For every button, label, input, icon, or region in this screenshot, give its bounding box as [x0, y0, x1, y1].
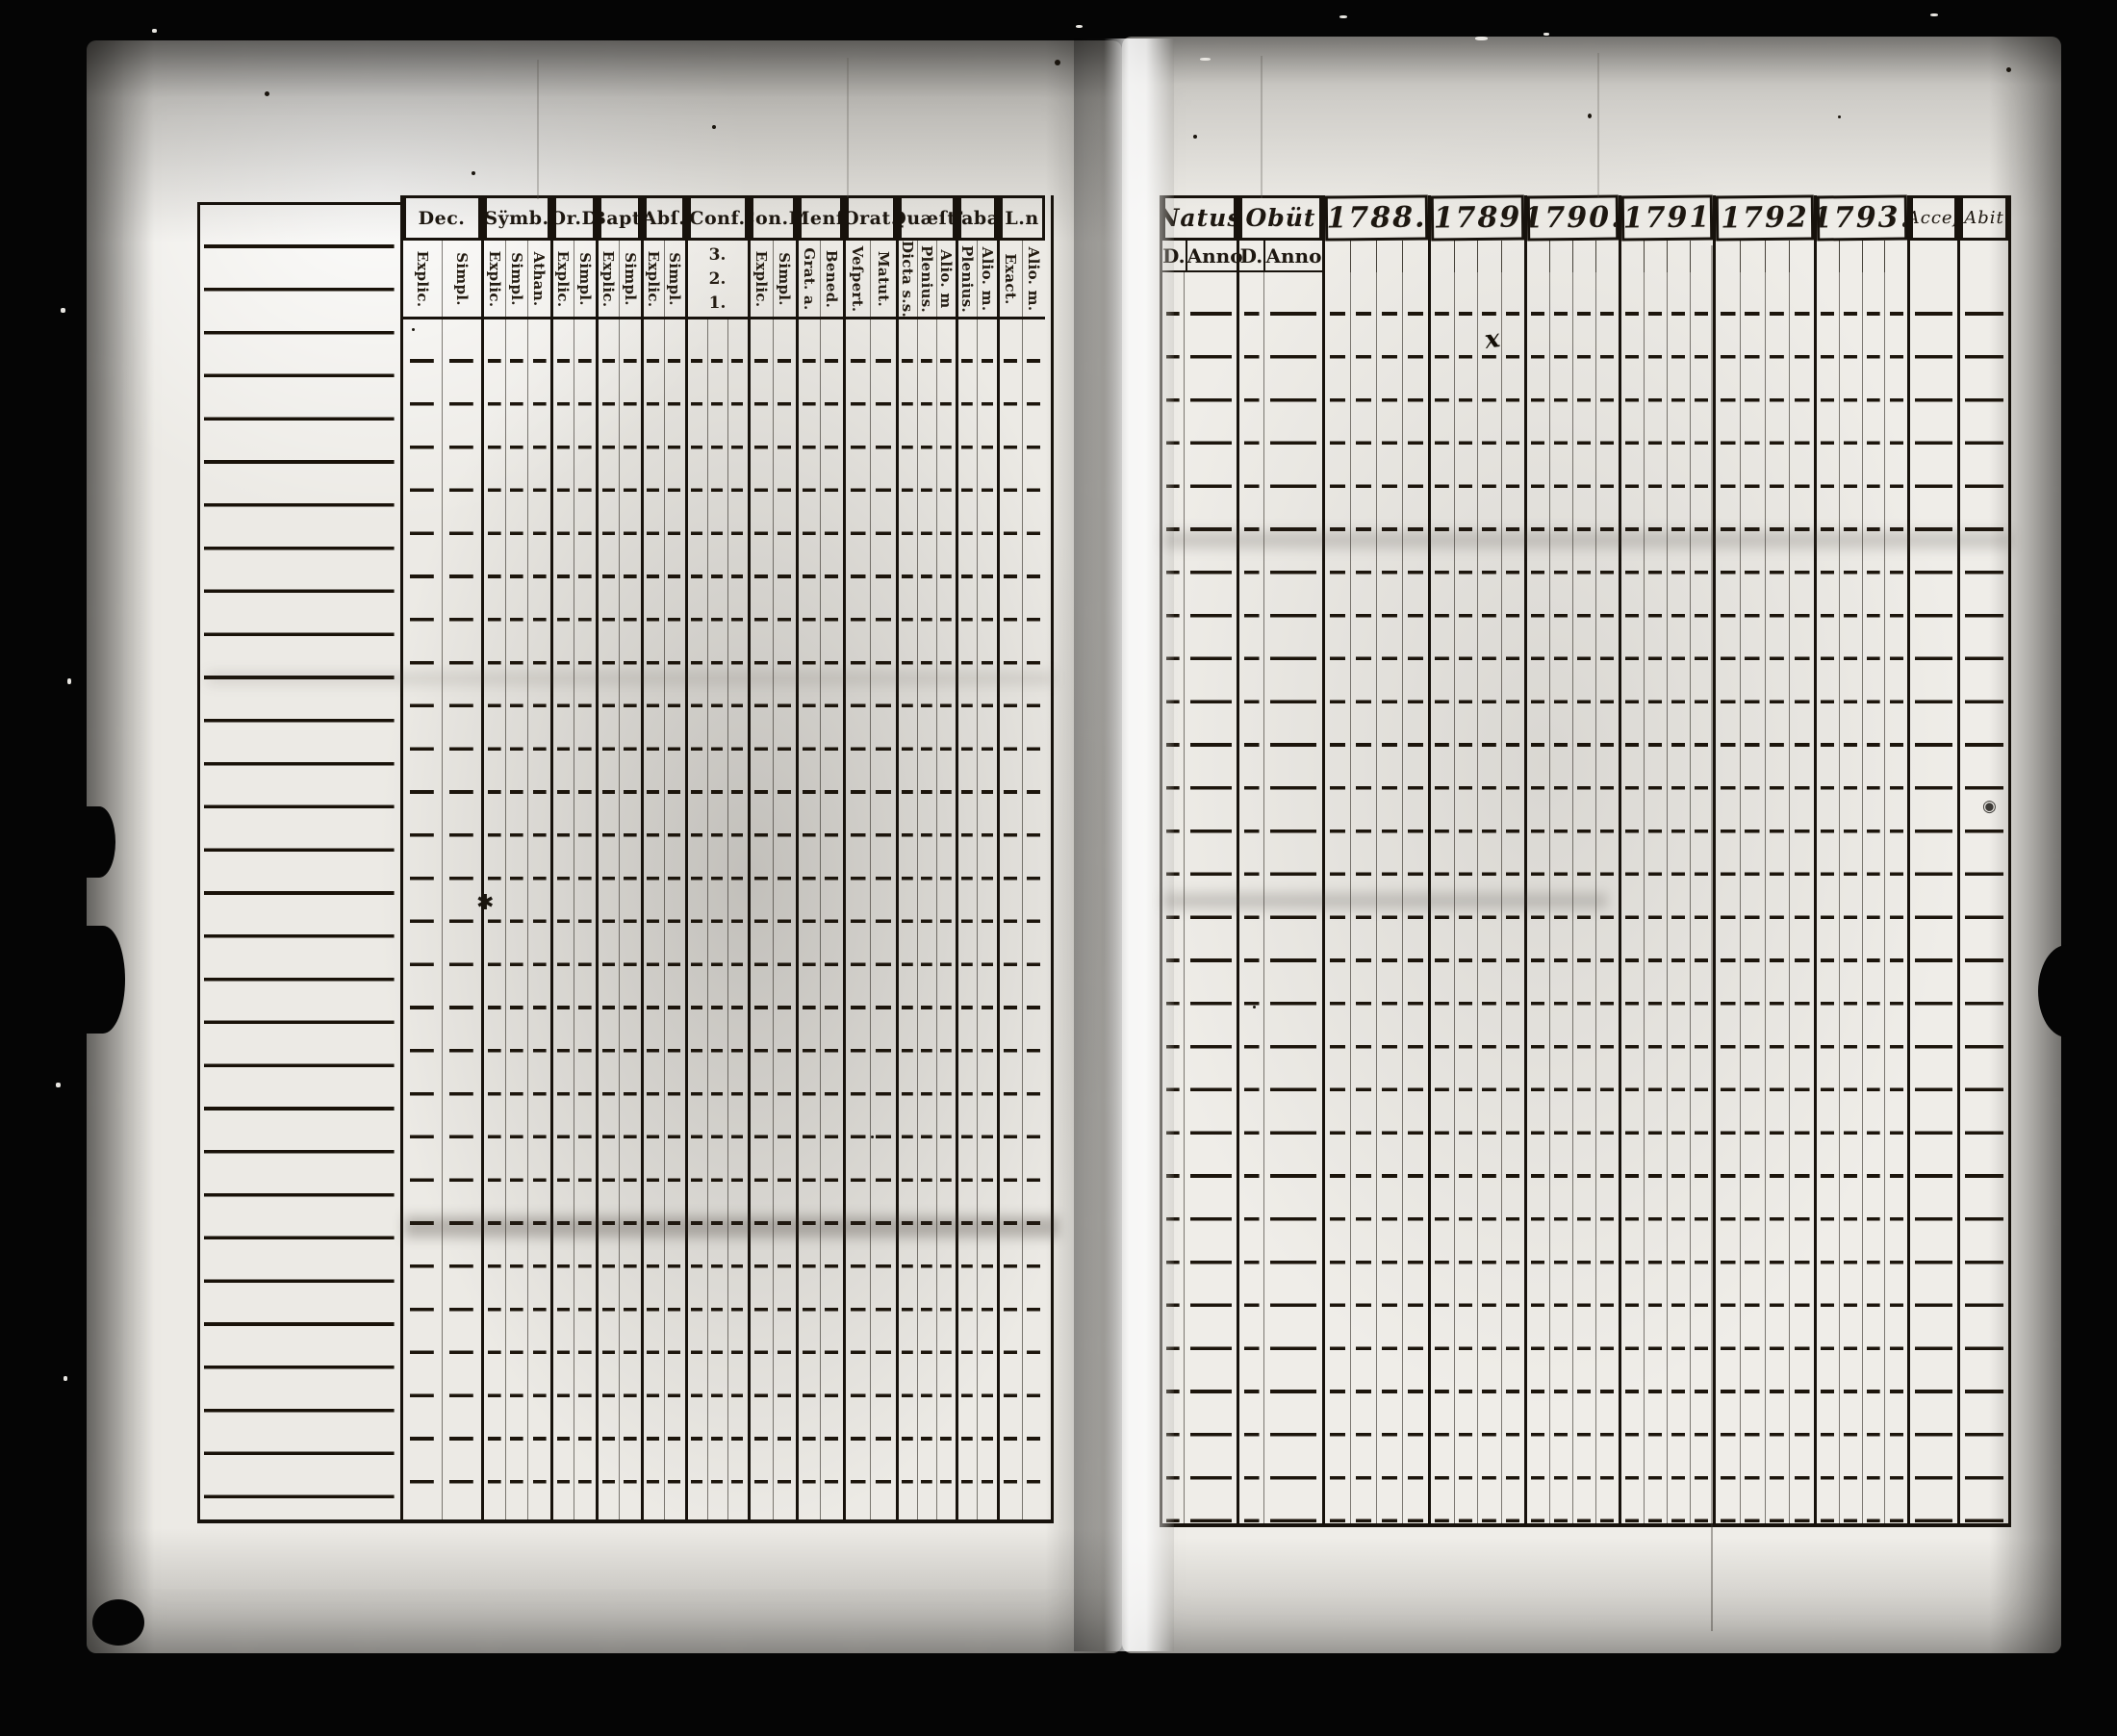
body-subcolumn — [527, 319, 549, 1519]
subcolumn-header: Exact. — [1000, 241, 1022, 317]
column-year-1788: 1788. — [1322, 195, 1428, 1523]
column-ln: L.n Exact. Alio. m. — [997, 195, 1045, 1519]
body-subcolumn — [1667, 272, 1690, 1523]
scratch-speck — [64, 1376, 67, 1381]
column-year-1789: 1789 — [1428, 195, 1524, 1523]
body-subcolumn — [846, 319, 871, 1519]
column-abit: Abit — [1957, 195, 2008, 1523]
body-subcolumn — [1184, 272, 1237, 1523]
column-header: Con.D — [751, 195, 796, 241]
subcolumn-header: Dicta s.s. — [899, 241, 917, 317]
right-register-table: Natus D. Anno Obüt D. Anno 1788. — [1160, 195, 2011, 1527]
body-subcolumn — [1000, 319, 1022, 1519]
body-subcolumn — [870, 319, 896, 1519]
body-subcolumn — [1527, 272, 1549, 1523]
year-header: 1789 — [1431, 194, 1524, 241]
body-subcolumn — [403, 319, 442, 1519]
year-header: 1791 — [1621, 195, 1713, 242]
subcolumn-header: Plenius. — [917, 241, 936, 317]
body-subcolumn — [619, 319, 641, 1519]
body-subcolumn — [1501, 272, 1525, 1523]
body-subcolumn — [727, 319, 748, 1519]
subcolumn-header: Bened. — [820, 241, 843, 317]
column-header: Tabæ — [958, 195, 997, 241]
column-conf: Conf. 3. 2. 1. — [685, 195, 748, 1519]
column-header: Sÿmb. — [484, 195, 550, 241]
body-subcolumn — [1817, 272, 1839, 1523]
column-abs: Abſ. Explic. Simpl. — [641, 195, 685, 1519]
body-subcolumn — [1572, 272, 1595, 1523]
column-mens: Menſ. Grat. a. Bened. — [796, 195, 843, 1519]
column-header: Acceſ — [1910, 195, 1957, 241]
class-levels: 3. 2. 1. — [688, 241, 748, 317]
subcolumn-header: Matut. — [870, 241, 896, 317]
name-column — [197, 202, 400, 1519]
column-year-1790: 1790. — [1524, 195, 1619, 1523]
body-subcolumn — [820, 319, 843, 1519]
scratch-speck — [61, 308, 65, 313]
subcolumn-header: Explic. — [553, 241, 574, 317]
year-header: 1793. — [1817, 195, 1907, 242]
body-subcolumn — [977, 319, 997, 1519]
column-orat: Orat. Veſpert. Matut. — [843, 195, 896, 1519]
subcolumn-header: Alio. m. — [977, 241, 997, 317]
column-quaest: Quæſt. Dicta s.s. Plenius. Alio. m — [896, 195, 956, 1519]
body-subcolumn — [1263, 272, 1322, 1523]
column-cond: Con.D Explic. Simpl. — [748, 195, 796, 1519]
year-header: 1792 — [1716, 194, 1814, 241]
column-header: L.n — [1000, 195, 1045, 241]
subcolumn-header: Anno — [1186, 241, 1243, 270]
body-subcolumn — [936, 319, 956, 1519]
subcolumn-header: Plenius. — [958, 241, 978, 317]
subcolumn-header: Explic. — [751, 241, 773, 317]
scratch-speck — [56, 1083, 61, 1087]
body-subcolumn — [1884, 272, 1907, 1523]
subcolumn-header: Explic. — [644, 241, 664, 317]
body-subcolumn — [1431, 272, 1454, 1523]
column-header: Dec. — [403, 195, 481, 241]
scratch-speck — [67, 678, 71, 684]
left-register-table: Dec. Explic. Simpl. Sÿmb. Explic. Simpl.… — [197, 195, 1054, 1523]
body-subcolumn — [751, 319, 773, 1519]
column-header: Bapt. — [599, 195, 641, 241]
body-subcolumn — [1162, 272, 1184, 1523]
scratch-speck — [1930, 13, 1938, 16]
body-subcolumn — [1477, 272, 1501, 1523]
body-subcolumn — [917, 319, 936, 1519]
body-subcolumn — [442, 319, 481, 1519]
body-subcolumn — [1454, 272, 1478, 1523]
body-subcolumn — [1350, 272, 1376, 1523]
body-subcolumn — [958, 319, 978, 1519]
column-year-1792: 1792 — [1713, 195, 1814, 1523]
body-subcolumn — [1644, 272, 1667, 1523]
scanned-register-spread: Dec. Explic. Simpl. Sÿmb. Explic. Simpl.… — [0, 0, 2117, 1736]
body-subcolumn — [1789, 272, 1814, 1523]
body-subcolumn — [707, 319, 727, 1519]
body-subcolumn — [1960, 272, 2008, 1523]
scratch-speck — [152, 29, 157, 33]
column-year-1793: 1793. — [1814, 195, 1907, 1523]
column-header: Natus — [1162, 195, 1237, 241]
column-header: Conf. — [688, 195, 748, 241]
body-subcolumn — [1325, 272, 1350, 1523]
body-subcolumn — [644, 319, 664, 1519]
column-obiit: Obüt D. Anno — [1237, 195, 1322, 1523]
body-subcolumn — [1765, 272, 1790, 1523]
body-subcolumn — [1595, 272, 1619, 1523]
body-subcolumn — [505, 319, 527, 1519]
column-symb: Sÿmb. Explic. Simpl. Athan. — [481, 195, 550, 1519]
column-bapt: Bapt. Explic. Simpl. — [596, 195, 641, 1519]
subcolumn-header: Simpl. — [773, 241, 796, 317]
body-subcolumn — [1740, 272, 1765, 1523]
column-header: Obüt — [1239, 195, 1322, 241]
subcolumn-header: Anno — [1263, 241, 1322, 270]
body-subcolumn — [1690, 272, 1713, 1523]
subcolumn-header: D. — [1239, 241, 1263, 270]
column-header: Quæſt. — [899, 195, 956, 241]
body-subcolumn — [773, 319, 796, 1519]
body-subcolumn — [1716, 272, 1740, 1523]
body-subcolumn — [1022, 319, 1045, 1519]
body-subcolumn — [1376, 272, 1402, 1523]
subcolumn-header: Alio. m. — [1022, 241, 1045, 317]
subcolumn-header: Simpl. — [574, 241, 596, 317]
body-subcolumn — [1402, 272, 1428, 1523]
subcolumn-header: Explic. — [403, 241, 442, 317]
scratch-speck — [1076, 25, 1083, 28]
year-header: 1788. — [1325, 194, 1428, 241]
body-subcolumn — [799, 319, 821, 1519]
body-subcolumn — [899, 319, 917, 1519]
column-header: Abit — [1960, 195, 2008, 241]
body-subcolumn — [484, 319, 505, 1519]
column-dec: Dec. Explic. Simpl. — [400, 195, 481, 1519]
body-subcolumn — [574, 319, 596, 1519]
column-header: Menſ. — [799, 195, 843, 241]
left-page: Dec. Explic. Simpl. Sÿmb. Explic. Simpl.… — [87, 40, 1122, 1653]
column-tabae: Tabæ Plenius. Alio. m. — [956, 195, 997, 1519]
column-accessit: Acceſ — [1907, 195, 1957, 1523]
body-subcolumn — [688, 319, 707, 1519]
subcolumn-header: Explic. — [599, 241, 620, 317]
body-subcolumn — [599, 319, 620, 1519]
body-subcolumn — [1239, 272, 1263, 1523]
body-subcolumn — [1621, 272, 1644, 1523]
subcolumn-header: Athan. — [527, 241, 549, 317]
subcolumn-header: Explic. — [484, 241, 505, 317]
scratch-speck — [1543, 33, 1549, 36]
body-subcolumn — [1549, 272, 1572, 1523]
subcolumn-header: Veſpert. — [846, 241, 871, 317]
subcolumn-header: D. — [1162, 241, 1186, 270]
scratch-speck — [1339, 15, 1347, 18]
subcolumn-header: Simpl. — [619, 241, 641, 317]
column-natus: Natus D. Anno — [1162, 195, 1237, 1523]
body-subcolumn — [1839, 272, 1862, 1523]
column-year-1791: 1791 — [1619, 195, 1713, 1523]
body-subcolumn — [1862, 272, 1885, 1523]
body-subcolumn — [553, 319, 574, 1519]
column-ord: Or.D Explic. Simpl. — [550, 195, 596, 1519]
body-subcolumn — [1910, 272, 1957, 1523]
subcolumn-header: Simpl. — [505, 241, 527, 317]
subcolumn-header: Simpl. — [442, 241, 481, 317]
subcolumn-header: Alio. m — [936, 241, 956, 317]
right-page: Natus D. Anno Obüt D. Anno 1788. — [1122, 37, 2061, 1653]
subcolumn-header: Simpl. — [664, 241, 685, 317]
column-header: Abſ. — [644, 195, 685, 241]
column-header: Or.D — [553, 195, 596, 241]
column-header: Orat. — [846, 195, 896, 241]
body-subcolumn — [664, 319, 685, 1519]
subcolumn-header: Grat. a. — [799, 241, 821, 317]
year-header: 1790. — [1527, 195, 1619, 242]
